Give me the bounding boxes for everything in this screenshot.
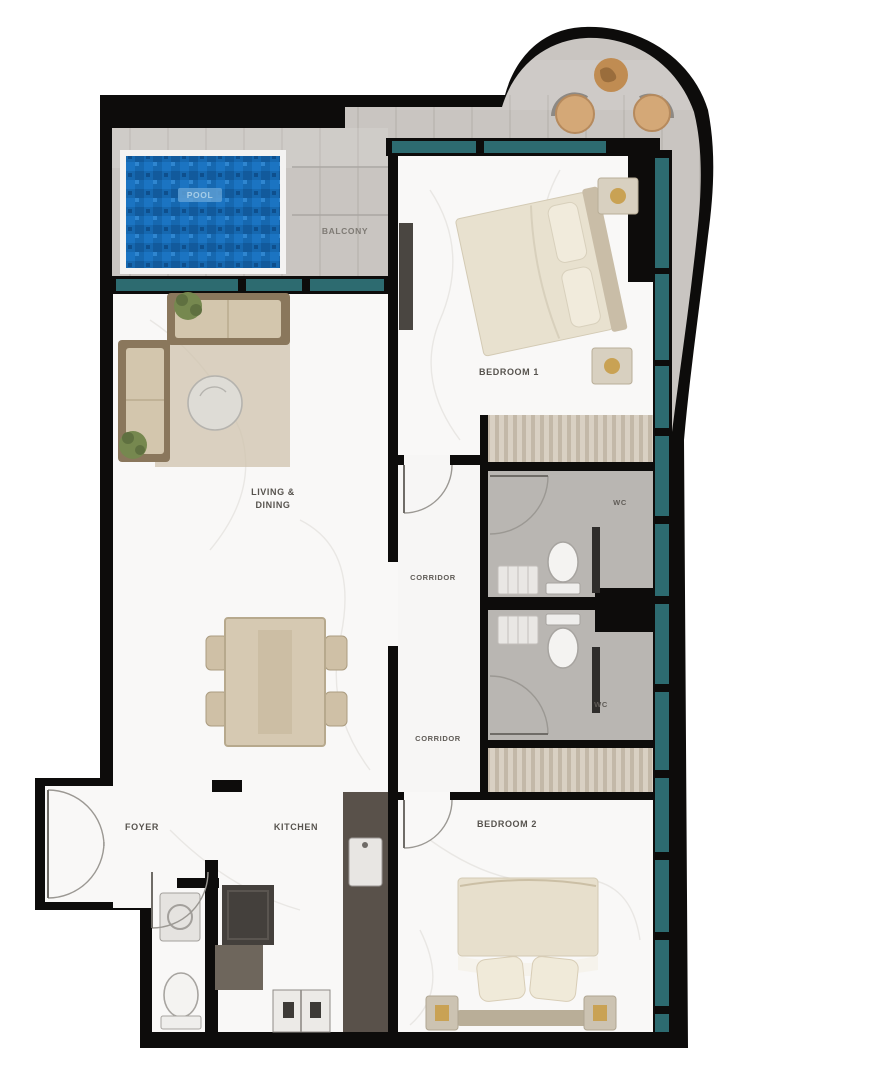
wall-stub-wc	[177, 878, 219, 888]
balcony-label: BALCONY	[322, 226, 368, 236]
corridor-lower-label: CORRIDOR	[415, 734, 461, 743]
bed2-pillow	[529, 956, 579, 1003]
bedroom1-door-opening	[404, 455, 450, 465]
wall-stub-foyer	[212, 780, 242, 792]
kitchen-cabinet	[215, 945, 263, 990]
bathroom2-label: WC	[594, 700, 608, 709]
bedroom2-door-opening	[404, 792, 450, 800]
dining-chair	[325, 636, 347, 670]
bathroom1-label: WC	[613, 498, 627, 507]
bath1-toilet-tank	[546, 583, 580, 594]
wall-corridor-bath-a	[480, 462, 488, 476]
kitchen-label: KITCHEN	[274, 822, 318, 832]
dining-set	[206, 618, 347, 746]
bed2-pillow	[476, 956, 526, 1003]
wall-corridor-bath-b	[480, 534, 488, 678]
lamp-gold	[610, 188, 626, 204]
tv-console	[399, 223, 413, 330]
coffee-table	[188, 376, 242, 430]
corridor-floor	[398, 465, 480, 800]
living-label-line1: LIVING &	[251, 487, 295, 497]
bath1-toilet	[548, 542, 578, 582]
window-bedroom1-a	[392, 141, 476, 153]
lounge-chair	[556, 95, 594, 133]
bed2-duvet	[458, 878, 598, 956]
pool-label: POOL	[187, 190, 214, 200]
lounge-chair	[634, 95, 670, 131]
wall-bath2-bottom	[482, 740, 653, 748]
wall-kitchen-bedroom2	[388, 792, 398, 1032]
wall-chunk-baths	[595, 588, 653, 632]
bath2-toilet	[548, 628, 578, 668]
wall-bath1-top	[482, 462, 653, 471]
corridor-upper-label: CORRIDOR	[410, 573, 456, 582]
window-bedroom1-b	[484, 141, 606, 153]
window-living-a	[116, 279, 238, 291]
wall-living-corridor	[388, 646, 398, 792]
window-living-b	[246, 279, 302, 291]
living-label-line2: DINING	[255, 500, 290, 510]
floor-plan-page: BALCONY POOL	[0, 0, 885, 1080]
pool: POOL	[120, 150, 286, 274]
wall-wardrobe1	[480, 415, 488, 462]
dining-chair	[325, 692, 347, 726]
foyer-label: FOYER	[125, 822, 159, 832]
wall-living-bedroom1	[388, 142, 398, 562]
lamp-gold	[435, 1005, 449, 1021]
lamp-gold	[604, 358, 620, 374]
toilet	[164, 973, 198, 1017]
kitchen-counter	[343, 792, 388, 1032]
window-right-strip	[655, 158, 669, 1032]
window-living-c	[310, 279, 384, 291]
bath2-toilet-tank	[546, 614, 580, 625]
bath1-partition	[592, 527, 600, 593]
floor-plan-canvas: BALCONY POOL	[0, 0, 885, 1080]
entry-vestibule-floor	[45, 786, 160, 902]
wardrobe1	[488, 415, 653, 462]
fridge	[222, 885, 274, 945]
bedroom2-label: BEDROOM 2	[477, 819, 537, 829]
wall-wardrobe2	[480, 748, 488, 792]
wall-between-baths	[488, 597, 595, 610]
bedroom1-label: BEDROOM 1	[479, 367, 539, 377]
wardrobe2	[488, 748, 653, 792]
pool-water	[126, 156, 280, 268]
lamp-gold	[593, 1005, 607, 1021]
washer	[160, 893, 200, 941]
toilet-tank	[161, 1016, 201, 1029]
